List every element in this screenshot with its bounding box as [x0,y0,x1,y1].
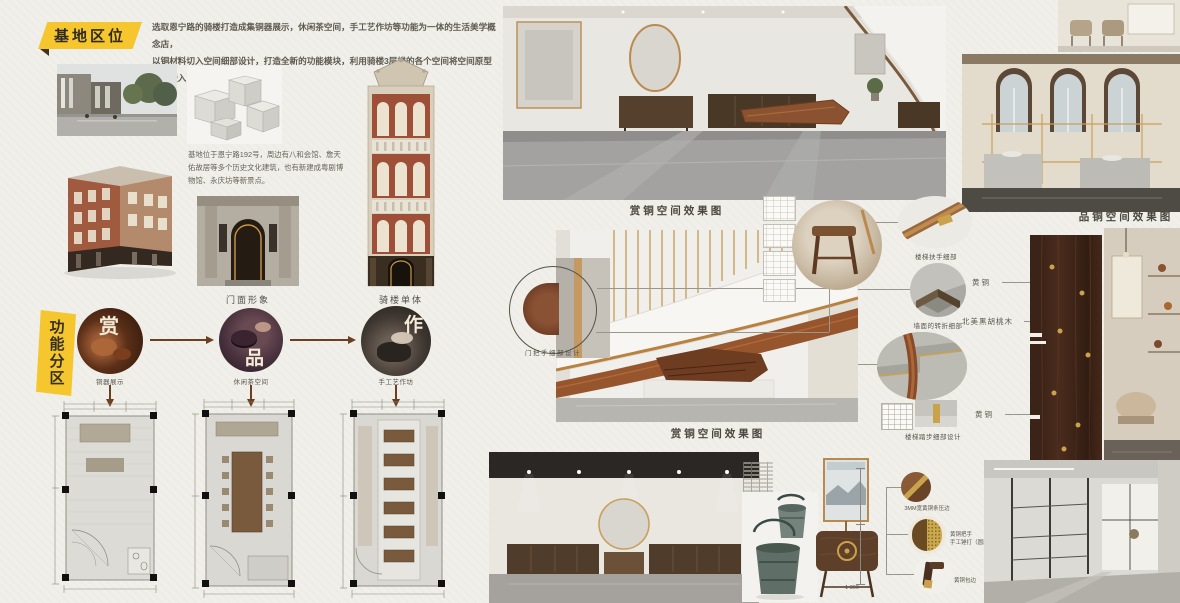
brass-handle-detail-photo [908,516,946,554]
brass-strip-detail-label: 3MM宽黄铜条压边 [896,504,958,512]
walnut-panel-photo [1030,235,1102,483]
intro-line-1: 选取恩宁路的骑楼打造成集铜器展示，休闲茶空间，手工艺作坊等功能为一体的生活美学概… [152,19,500,53]
entrance-render [197,196,299,286]
brass-wrap-detail-photo [914,556,952,594]
render-tea-room [489,452,759,603]
tread-technical-drawing [881,403,913,430]
dresser-dim-line [860,468,861,584]
material-line-brass-bottom [1005,414,1030,415]
street-photo [57,64,177,136]
handrail-detail-label: 楼梯扶手细部 [898,251,974,261]
render-label-shang-mid: 赏铜空间效果图 [663,426,773,441]
section-title: 基地区位 [54,25,126,46]
wall-corner-detail-photo [910,263,966,317]
render-copper-display-room [503,6,946,200]
render-label-shang-top: 赏铜空间效果图 [622,203,732,218]
render-copper-tasting-room [962,54,1180,212]
mirror-dresser-render [810,455,884,601]
floor-plan-1 [50,398,170,596]
handrail-detail-photo [898,196,972,248]
material-line-brass-top [1002,282,1030,283]
stair-tread-detail-label: 楼梯踏步细部设计 [888,431,978,441]
calligraphy-char-pin: 品 [245,343,264,370]
calligraphy-char-shang: 赏 [99,310,119,339]
zoning-arrow-2 [290,336,356,344]
site-description: 基地位于恩宁路192号，周边有八和会馆、詹天佑故居等多个历史文化建筑，也有新建成… [188,148,344,194]
dresser-width-dim: 1 360 [832,585,872,591]
corner-room-render [1058,0,1180,52]
design-poster: 基地区位 选取恩宁路的骑楼打造成集铜器展示，休闲茶空间，手工艺作坊等功能为一体的… [0,0,1180,603]
dresser-detail-conn-2 [886,534,908,535]
zoning-photo-tea-space: 品 [219,308,283,372]
detail-connector-wall [858,289,914,290]
zoning-arrow-1 [150,336,214,344]
caption-facade: 门面形象 [197,293,299,306]
dresser-dim-tick-1 [856,468,865,469]
zoning-title: 功能分区 [46,319,67,387]
caption-building: 骑楼单体 [352,293,450,306]
calligraphy-char-zuo: 作 [404,310,423,337]
stool-detail-photo [792,200,882,290]
section-title-tag: 基地区位 [38,22,142,49]
dresser-detail-conn-1 [886,487,902,488]
door-handle-connector-3 [829,288,830,332]
floor-plan-3 [336,396,458,603]
wall-corner-detail-label: 墙面的转折细部 [896,320,980,330]
qilou-facade-render [352,56,450,292]
dresser-dim-tick-2 [856,524,865,525]
stair-tread-detail-photo [877,332,967,400]
door-handle-callout-ring [509,266,597,354]
brass-wrap-detail-label: 黄铜包边 [954,576,988,584]
zoning-title-tag: 功能分区 [36,310,76,396]
corner-building-render [50,140,183,282]
brass-strip-detail-photo [901,472,931,502]
floor-plan-2 [190,396,308,603]
material-label-brass-top: 黄铜 [972,277,1002,288]
material-label-brass-bottom: 黄铜 [975,409,1005,420]
render-glass-corridor [984,460,1180,603]
dresser-detail-conn-3 [886,574,914,575]
title-shadow-triangle [40,49,49,56]
copper-buckets-photo [742,492,818,602]
render-display-nook [1104,228,1180,480]
material-line-walnut [1024,321,1030,322]
door-handle-label: 门把手细部设计 [505,347,601,357]
dresser-detail-spine [886,487,887,575]
door-handle-connector-2 [596,332,829,333]
zoning-photo-copper-display: 赏 [77,308,143,374]
render-label-pin: 品铜空间效果图 [1072,209,1180,224]
zoning-photo-craft-workshop: 作 [361,306,431,376]
stair-schematic-strip [763,196,796,302]
site-massing-model [187,66,282,144]
tread-sample-photo [915,400,957,427]
